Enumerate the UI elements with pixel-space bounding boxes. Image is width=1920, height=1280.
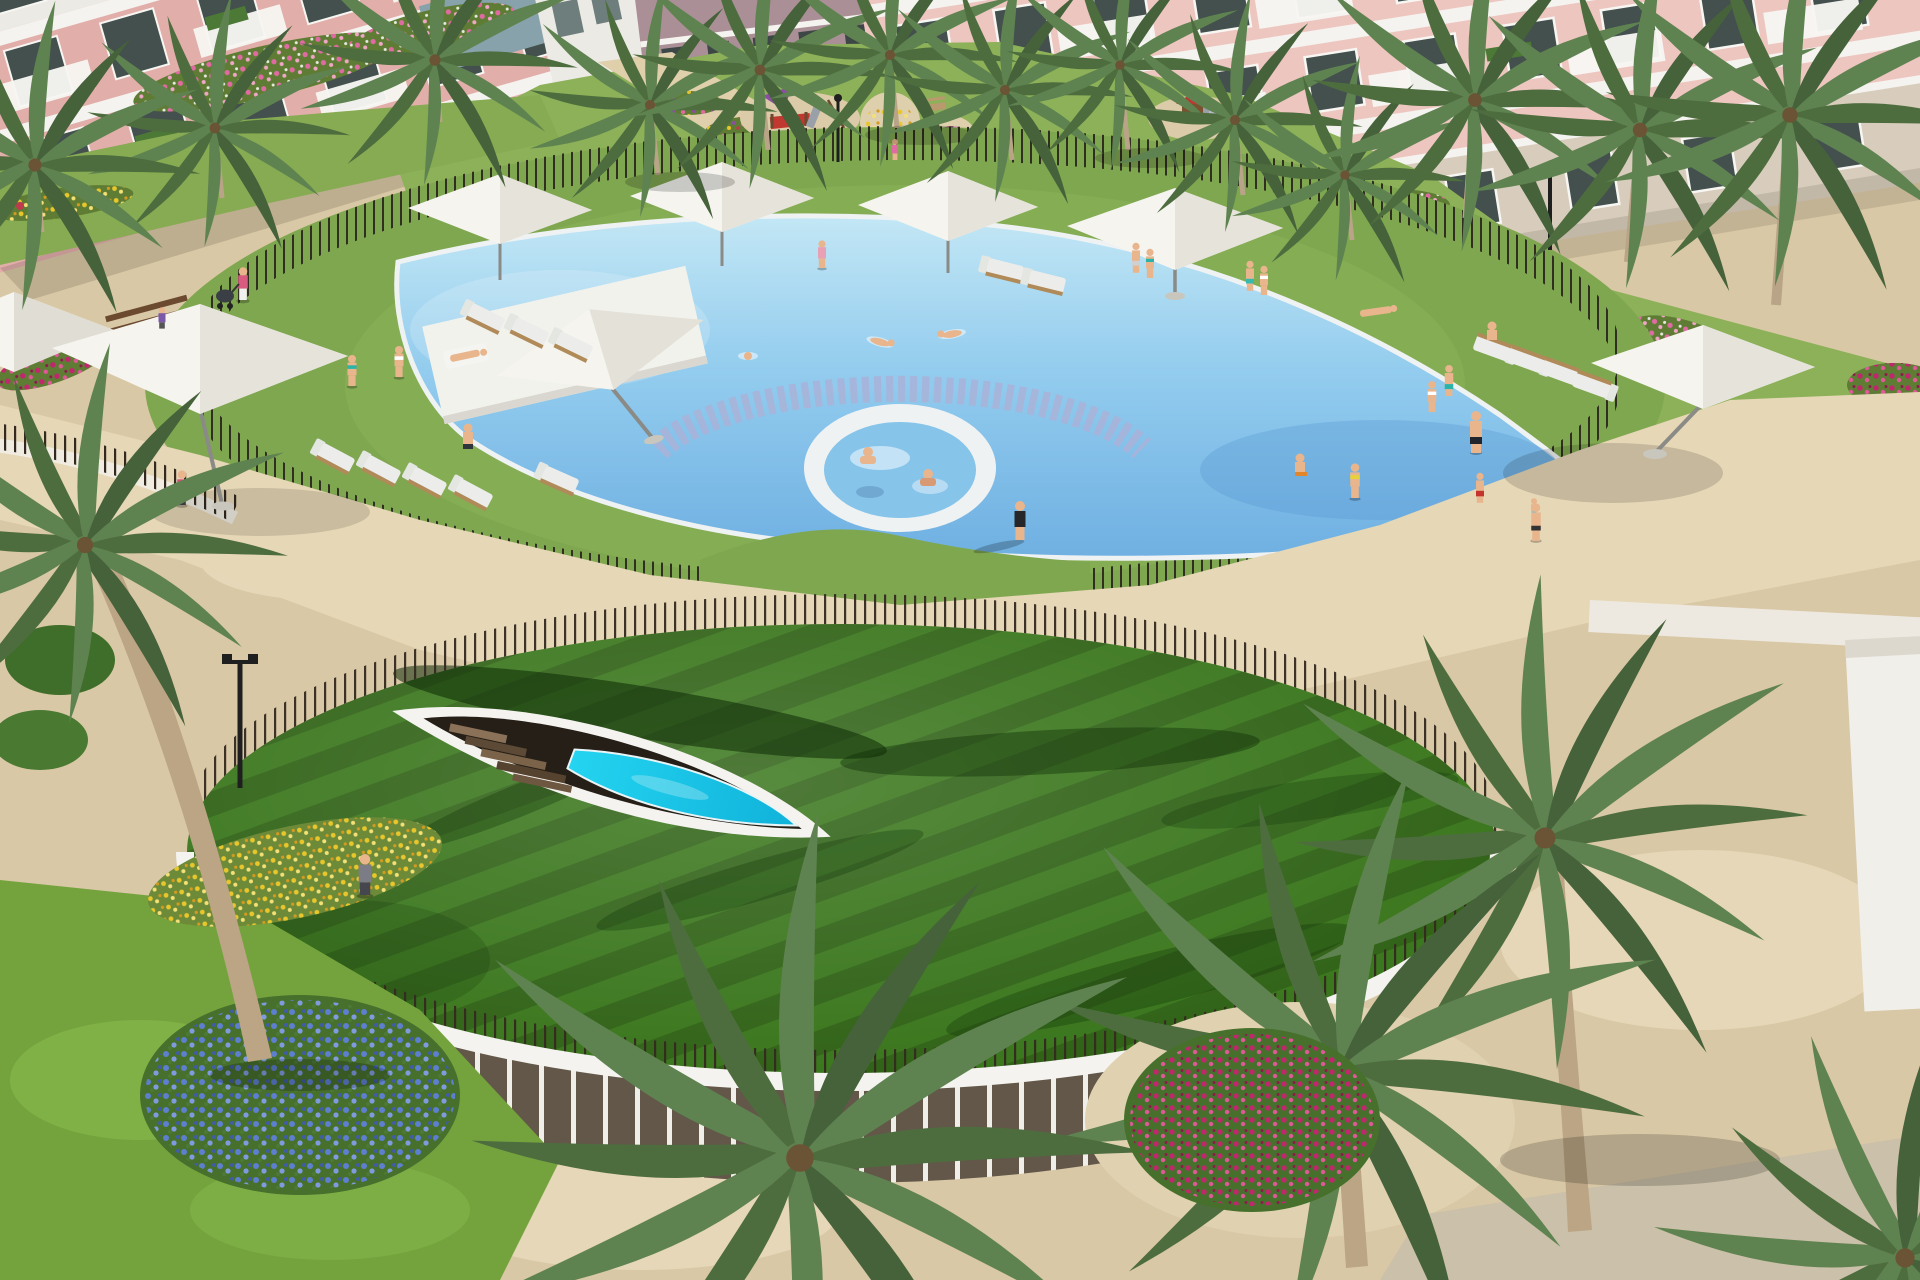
resort-aerial-render [0, 0, 1920, 1280]
hydrangea-bed [145, 1000, 455, 1190]
person-boy-red-shorts [1476, 473, 1484, 503]
spa-pool [804, 404, 996, 532]
rendered-scene [0, 0, 1920, 1280]
person-couple-b2 [1260, 266, 1268, 295]
person-child-bench [159, 307, 166, 328]
person-couple-b1 [1246, 261, 1254, 291]
person-on-lounger-right [1487, 322, 1497, 341]
person-pair-b [1445, 365, 1454, 396]
person-pair-a [1428, 381, 1437, 412]
person-couple-a1 [1132, 243, 1140, 273]
person-couple-a2 [1146, 249, 1154, 278]
bougainvillea-bed [1124, 1028, 1380, 1212]
person-man-dark-shorts [1470, 411, 1482, 455]
person-lounger-sitter [463, 424, 473, 450]
